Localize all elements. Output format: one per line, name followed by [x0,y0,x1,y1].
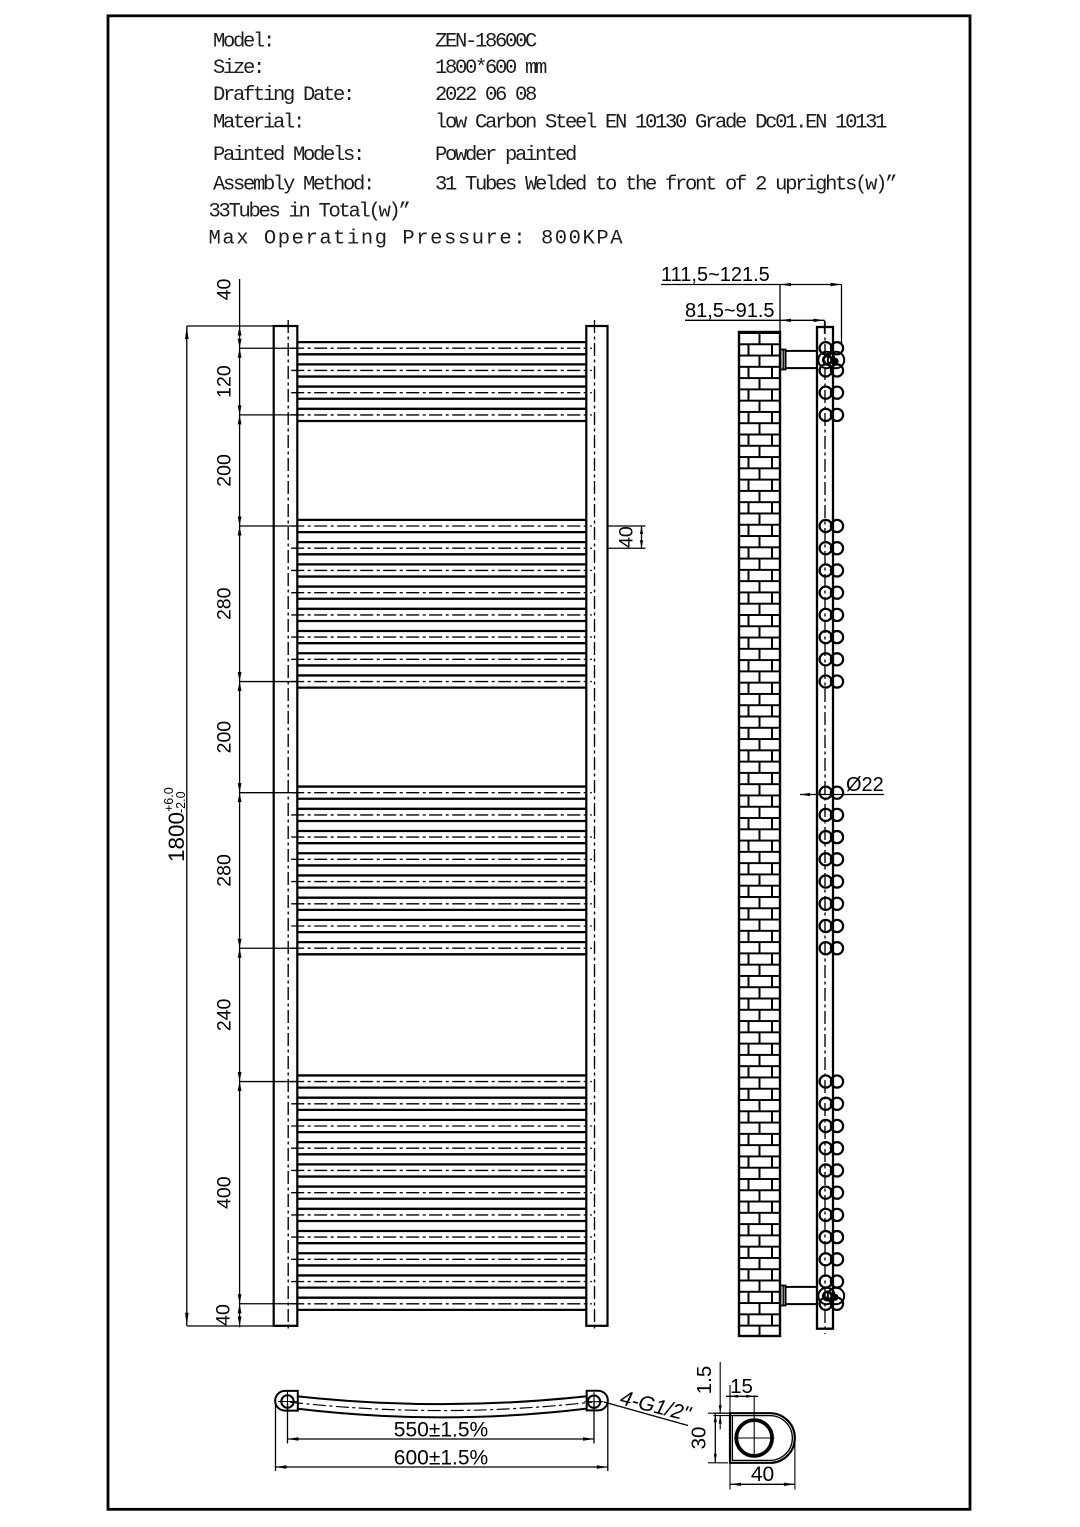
svg-text:111,5~121.5: 111,5~121.5 [661,264,770,286]
svg-text:31 Tubes Welded to the front o: 31 Tubes Welded to the front of 2 uprigh… [435,174,896,197]
svg-text:81,5~91.5: 81,5~91.5 [685,300,775,322]
svg-text:Painted Models:: Painted Models: [213,144,363,167]
svg-text:Material:: Material: [213,112,303,135]
svg-text:600±1.5%: 600±1.5% [394,1447,488,1470]
svg-text:1800*600 mm: 1800*600 mm [435,57,547,80]
svg-text:200: 200 [214,721,236,754]
svg-text:40: 40 [213,1304,235,1326]
svg-text:240: 240 [214,998,236,1031]
svg-text:40: 40 [751,1463,774,1486]
svg-text:1.5: 1.5 [693,1366,716,1395]
svg-text:Size:: Size: [213,57,263,80]
svg-text:15: 15 [730,1375,753,1398]
svg-text:Powder painted: Powder painted [435,144,576,167]
svg-text:1800: 1800 [164,812,189,862]
svg-text:200: 200 [214,454,236,487]
svg-text:120: 120 [214,365,236,398]
svg-text:40: 40 [616,526,638,548]
svg-text:33Tubes in Total(w)”: 33Tubes in Total(w)” [209,201,410,224]
svg-text:Max Operating Pressure: 800KPA: Max Operating Pressure: 800KPA [209,228,625,251]
svg-text:280: 280 [214,587,236,620]
svg-text:2022 06 08: 2022 06 08 [435,84,536,107]
svg-text:40: 40 [214,279,236,301]
svg-text:280: 280 [214,854,236,887]
svg-text:550±1.5%: 550±1.5% [394,1419,488,1442]
svg-text:Model:: Model: [213,31,273,54]
svg-text:Assembly Method:: Assembly Method: [213,174,373,197]
svg-text:Ø22: Ø22 [846,774,884,796]
svg-text:-2.0: -2.0 [174,791,188,813]
svg-text:low Carbon Steel EN 10130 Gra: low Carbon Steel EN 10130 Grade Dc01.EN … [435,112,887,135]
svg-text:400: 400 [214,1176,236,1209]
svg-text:30: 30 [688,1427,711,1450]
svg-text:ZEN-18600C: ZEN-18600C [435,31,537,54]
svg-text:Drafting Date:: Drafting Date: [213,84,353,107]
